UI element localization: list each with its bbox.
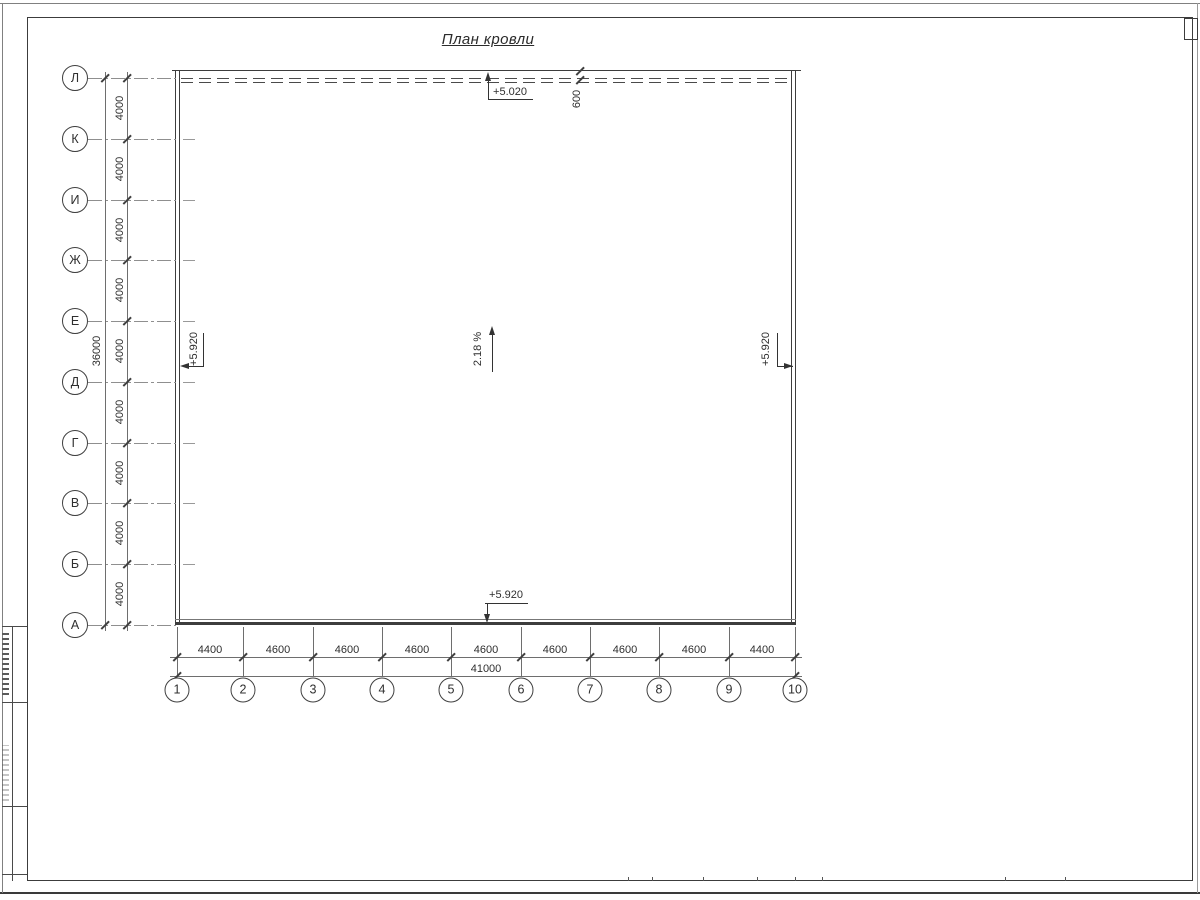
- dimension-line-bottom-chain: [170, 657, 802, 658]
- col-bubble-6: 6: [509, 678, 534, 703]
- dim-value: 4000: [114, 400, 126, 424]
- col-bubble-2: 2: [231, 678, 256, 703]
- dim-value: 4600: [266, 644, 290, 656]
- axis-line-row: [88, 503, 176, 504]
- extension-line-col: [177, 627, 178, 677]
- slope-arrow-line: [492, 334, 493, 372]
- drawing-frame: [27, 17, 1193, 881]
- leader-line: [488, 79, 489, 100]
- side-stamp-line: [2, 874, 27, 875]
- extension-line-col: [521, 627, 522, 677]
- axis-stub-row: [183, 443, 195, 444]
- leader-line: [777, 333, 778, 367]
- dim-value: 4000: [114, 582, 126, 606]
- title-block-stub: [628, 877, 629, 881]
- row-bubble-G: Г: [62, 430, 88, 456]
- leader-line: [203, 333, 204, 367]
- row-bubble-E: Е: [62, 308, 88, 334]
- extension-line-col: [243, 627, 244, 677]
- title-block-stub: [703, 877, 704, 881]
- axis-stub-row: [183, 139, 195, 140]
- dim-value: 4600: [474, 644, 498, 656]
- leader-arrow-down: [484, 614, 490, 623]
- dim-value: 4000: [114, 218, 126, 242]
- axis-line-row: [88, 260, 176, 261]
- side-stamp-line: [2, 702, 27, 703]
- frame-corner-box: [1184, 18, 1198, 40]
- drawing-title: План кровли: [442, 31, 534, 48]
- title-block-stub: [757, 877, 758, 881]
- dim-total-bottom: 41000: [471, 663, 502, 675]
- dim-value: 4000: [114, 278, 126, 302]
- dim-value: 4000: [114, 96, 126, 120]
- dim-value: 4600: [543, 644, 567, 656]
- side-stamp-text: [2, 631, 9, 695]
- leader-line: [488, 99, 533, 100]
- dim-value: 4000: [114, 157, 126, 181]
- col-bubble-10: 10: [783, 678, 808, 703]
- dim-top-offset: 600: [571, 90, 583, 108]
- leader-line: [485, 603, 528, 604]
- title-block-stub: [795, 877, 796, 881]
- title-block-stub: [652, 877, 653, 881]
- row-bubble-K: К: [62, 126, 88, 152]
- slope-label: 2.18 %: [472, 332, 484, 366]
- side-stamp-line: [2, 626, 27, 627]
- dim-value: 4000: [114, 339, 126, 363]
- axis-stub-row: [183, 382, 195, 383]
- dim-value: 4400: [198, 644, 222, 656]
- row-bubble-A: А: [62, 612, 88, 638]
- extension-line-col: [382, 627, 383, 677]
- dim-total-left: 36000: [91, 336, 103, 367]
- sheet-edge-top: [0, 3, 1200, 4]
- axis-line-row: [88, 200, 176, 201]
- axis-line-row: [88, 382, 176, 383]
- elevation-left: +5.920: [188, 332, 200, 366]
- dim-value: 4400: [750, 644, 774, 656]
- title-block-stub: [822, 877, 823, 881]
- dim-value: 4600: [613, 644, 637, 656]
- axis-stub-row: [183, 503, 195, 504]
- axis-stub-row: [183, 200, 195, 201]
- col-bubble-3: 3: [301, 678, 326, 703]
- row-bubble-I: И: [62, 187, 88, 213]
- dimension-line-bottom-total: [170, 676, 802, 677]
- roof-hidden-line: [181, 82, 791, 84]
- col-bubble-5: 5: [439, 678, 464, 703]
- extension-line-col: [795, 627, 796, 677]
- leader-line: [187, 366, 204, 367]
- roof-plan-sheet: План кровли 4000 4000 4000 4000 4000 400…: [0, 0, 1200, 900]
- extension-line-col: [729, 627, 730, 677]
- side-stamp-line: [2, 806, 27, 807]
- axis-line-row: [88, 443, 176, 444]
- sheet-edge-bottom: [0, 892, 1200, 894]
- extension-line-col: [451, 627, 452, 677]
- dim-value: 4600: [335, 644, 359, 656]
- axis-stub-row: [183, 321, 195, 322]
- axis-stub-row: [183, 564, 195, 565]
- row-bubble-V: В: [62, 490, 88, 516]
- elevation-top: +5.020: [493, 86, 527, 98]
- elevation-right: +5.920: [760, 332, 772, 366]
- axis-stub-row: [183, 260, 195, 261]
- col-bubble-1: 1: [165, 678, 190, 703]
- col-bubble-7: 7: [578, 678, 603, 703]
- row-bubble-D: Д: [62, 369, 88, 395]
- dim-value: 4600: [405, 644, 429, 656]
- row-bubble-L: Л: [62, 65, 88, 91]
- side-stamp-divider: [12, 626, 13, 881]
- col-bubble-8: 8: [647, 678, 672, 703]
- title-block-stub: [1065, 877, 1066, 881]
- roof-edge-left: [175, 71, 180, 625]
- axis-line-row: [88, 321, 176, 322]
- roof-edge-right: [791, 71, 796, 625]
- leader-arrow-right: [784, 363, 793, 369]
- extension-line-col: [659, 627, 660, 677]
- sheet-edge-right: [1197, 3, 1198, 893]
- elevation-bottom: +5.920: [489, 589, 523, 601]
- dim-value: 4000: [114, 461, 126, 485]
- row-bubble-B: Б: [62, 551, 88, 577]
- extension-line-col: [590, 627, 591, 677]
- col-bubble-4: 4: [370, 678, 395, 703]
- dim-value: 4000: [114, 521, 126, 545]
- title-block-stub: [1005, 877, 1006, 881]
- side-stamp-text: [2, 745, 9, 801]
- slope-arrow-head: [489, 326, 495, 335]
- axis-line-row: [88, 564, 176, 565]
- dimension-line-left-total: [105, 72, 106, 631]
- row-bubble-Zh: Ж: [62, 247, 88, 273]
- dim-value: 4600: [682, 644, 706, 656]
- axis-line-row: [88, 139, 176, 140]
- extension-line-col: [313, 627, 314, 677]
- dimension-line-left-chain: [127, 72, 128, 631]
- col-bubble-9: 9: [717, 678, 742, 703]
